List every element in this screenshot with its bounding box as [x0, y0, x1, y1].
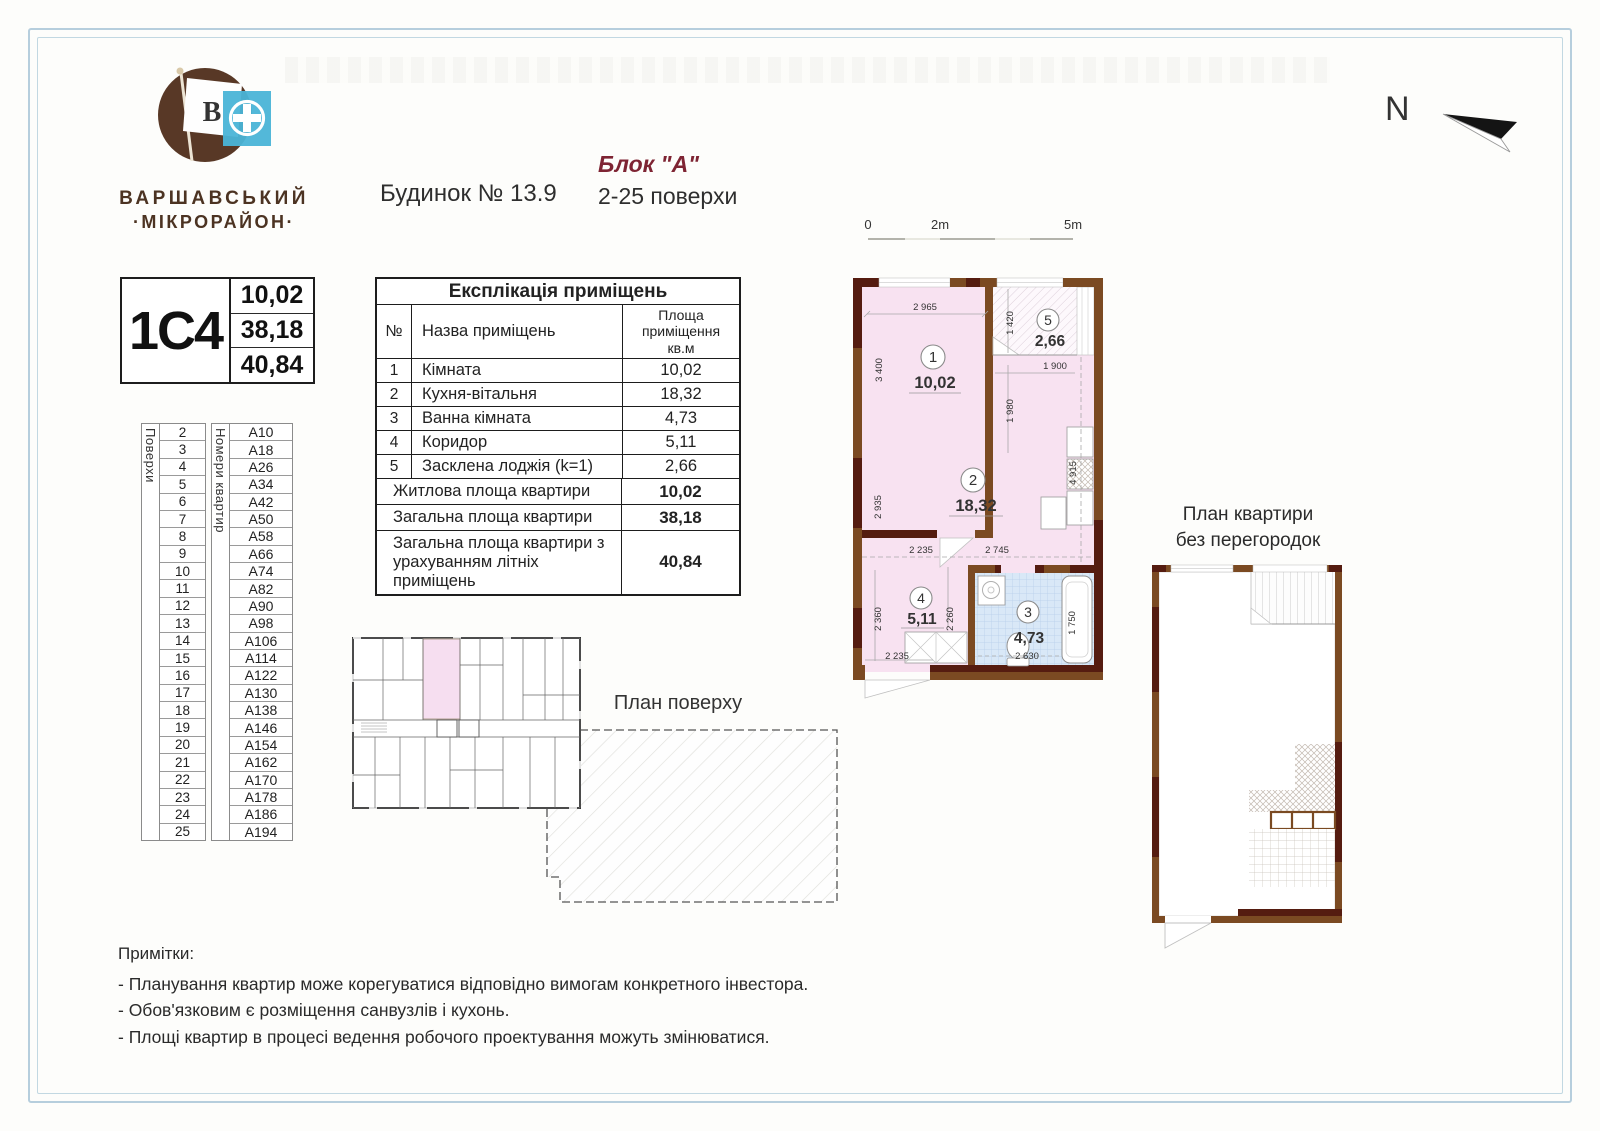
floor-number: 24	[160, 806, 205, 823]
apartment-number: A50	[230, 511, 292, 528]
explication-title: Експлікація приміщень	[377, 279, 739, 305]
floor-number: 11	[160, 580, 205, 597]
adjacent-block-outline	[547, 730, 837, 902]
residential-block	[353, 638, 580, 808]
brand-logo: В	[120, 58, 310, 188]
building-title: Будинок № 13.9	[380, 180, 557, 208]
loggia-area	[1251, 572, 1335, 624]
floor-number: 18	[160, 702, 205, 719]
dim-room1-left: 3 400	[874, 358, 885, 382]
apartment-number: A162	[230, 754, 292, 771]
floor-number: 5	[160, 476, 205, 493]
floor-number: 13	[160, 615, 205, 632]
dim-bath-right: 1 750	[1067, 611, 1078, 635]
floor-number: 21	[160, 754, 205, 771]
note-item: - Площі квартир в процесі ведення робочо…	[118, 1024, 1078, 1050]
apartment-number: A10	[230, 424, 292, 441]
apartment-plan: 0 2m 5m	[845, 215, 1110, 700]
entrance-door	[1165, 923, 1211, 948]
apartment-number: A146	[230, 719, 292, 736]
flagpole-knob	[177, 68, 184, 75]
explication-row: 2 Кухня-вітальня 18,32	[377, 383, 739, 407]
floor-number: 4	[160, 459, 205, 476]
floor-number: 15	[160, 650, 205, 667]
scale-tick-5m: 5m	[1064, 217, 1082, 232]
apartment-number: A138	[230, 702, 292, 719]
apartment-number: A154	[230, 737, 292, 754]
note-item: - Планування квартир може корегуватися в…	[118, 971, 1078, 997]
floor-number: 7	[160, 511, 205, 528]
scale-tick-0: 0	[864, 217, 871, 232]
flag-letter: В	[203, 97, 222, 128]
room2-number: 2	[969, 472, 977, 489]
dim-bath-top: 2 745	[985, 545, 1009, 556]
col-header-num: №	[377, 305, 412, 358]
dim-hall-height: 1 980	[1005, 399, 1016, 423]
floor-number: 20	[160, 737, 205, 754]
floor-number: 3	[160, 441, 205, 458]
apartment-numbers-table: Номери квартир A10A18A26A34A42A50A58A66A…	[211, 423, 293, 841]
apartment-number: A114	[230, 650, 292, 667]
floors-label: Поверхи	[142, 424, 160, 840]
apartment-number: A66	[230, 546, 292, 563]
unit-code: 1С4	[122, 279, 231, 382]
brand-name-line2: ·МІКРОРАЙОН·	[118, 212, 310, 233]
floor-number: 12	[160, 598, 205, 615]
col-header-area: Площа приміщення кв.м	[623, 305, 739, 358]
floor-plan-overview: План поверху	[345, 625, 845, 910]
explication-table: Експлікація приміщень № Назва приміщень …	[375, 277, 741, 596]
apartment-number: A74	[230, 563, 292, 580]
room3-number: 3	[1024, 604, 1032, 620]
room1-area: 10,02	[914, 374, 955, 392]
highlighted-unit	[423, 639, 460, 719]
floor-plan-label: План поверху	[614, 692, 742, 714]
elevator-shaft	[459, 720, 479, 737]
floors-table: Поверхи 23456789101112131415161718192021…	[141, 423, 206, 841]
room1-number: 1	[929, 349, 937, 366]
floor-number: 9	[160, 546, 205, 563]
dim-loggia-width: 1 900	[1043, 361, 1067, 372]
top-watermark-strip	[285, 57, 1330, 83]
north-label: N	[1385, 90, 1410, 128]
floor-number: 22	[160, 772, 205, 789]
apartment-number: A18	[230, 441, 292, 458]
unit-card-value: 40,84	[231, 348, 313, 382]
dim-top: 2 965	[913, 302, 937, 313]
room5-number: 5	[1044, 312, 1052, 328]
north-arrow: N	[1355, 72, 1555, 167]
floor-number: 6	[160, 494, 205, 511]
dim-room4-left: 2 360	[873, 607, 884, 631]
unit-card: 1С4 10,0238,1840,84	[120, 277, 315, 384]
explication-summary-row: Загальна площа квартири 38,18	[377, 505, 739, 531]
floor-number: 17	[160, 685, 205, 702]
explication-row: 4 Коридор 5,11	[377, 431, 739, 455]
scale-tick-2m: 2m	[931, 217, 949, 232]
apartment-number: A26	[230, 459, 292, 476]
unit-card-value: 38,18	[231, 314, 313, 349]
plan-sheet: В ВАРШАВСЬКИЙ ·МІКРОРАЙОН· Будинок № 13.…	[0, 0, 1600, 1131]
room3-area: 4,73	[1014, 630, 1045, 647]
apartment-number: A58	[230, 528, 292, 545]
apartment-number: A178	[230, 789, 292, 806]
unit-card-value: 10,02	[231, 279, 313, 314]
apartments-label: Номери квартир	[212, 424, 230, 840]
apartment-number: A42	[230, 494, 292, 511]
explication-summary-row: Загальна площа квартири з урахуванням лі…	[377, 531, 739, 594]
room2-area: 18,32	[955, 497, 996, 515]
block-title: Блок "А"	[598, 151, 699, 178]
dim-bath-bottom: 2 630	[1015, 651, 1039, 662]
floor-number: 25	[160, 824, 205, 840]
floor-number: 19	[160, 719, 205, 736]
notes: Примітки: - Планування квартир може коре…	[118, 944, 1078, 1050]
apartment-number: A106	[230, 633, 292, 650]
explication-row: 1 Кімната 10,02	[377, 359, 739, 383]
apartment-number: A98	[230, 615, 292, 632]
dim-room2-left: 2 935	[873, 495, 884, 519]
apartment-number: A34	[230, 476, 292, 493]
room4-number: 4	[917, 590, 925, 606]
elevator-shaft	[437, 720, 457, 737]
explication-header: № Назва приміщень Площа приміщення кв.м	[377, 305, 739, 359]
explication-row: 5 Засклена лоджія (k=1) 2,66	[377, 455, 739, 479]
floor-number: 2	[160, 424, 205, 441]
room5-area: 2,66	[1035, 333, 1066, 350]
apartment-number: A90	[230, 598, 292, 615]
notes-title: Примітки:	[118, 944, 1078, 964]
dim-bottom-left: 2 235	[885, 651, 909, 662]
dim-room4-height: 2 260	[945, 607, 956, 631]
scale-bar: 0 2m 5m	[864, 217, 1082, 239]
floors-range: 2-25 поверхи	[598, 183, 737, 210]
no-partitions-title: План квартири без перегородок	[1148, 502, 1348, 553]
apartment-number: A170	[230, 772, 292, 789]
floor-number: 16	[160, 667, 205, 684]
note-item: - Обов'язковим є розміщення санвузлів і …	[118, 997, 1078, 1023]
apartment-number: A130	[230, 685, 292, 702]
explication-row: 3 Ванна кімната 4,73	[377, 407, 739, 431]
col-header-name: Назва приміщень	[412, 305, 623, 358]
dim-right-height: 4 915	[1068, 461, 1079, 485]
no-partitions-plan	[1143, 552, 1355, 952]
floor-number: 23	[160, 789, 205, 806]
room4-area: 5,11	[907, 611, 937, 628]
brand-name-line1: ВАРШАВСЬКИЙ	[118, 188, 310, 210]
dim-loggia-height: 1 420	[1005, 311, 1016, 335]
floor-number: 10	[160, 563, 205, 580]
apartment-number: A82	[230, 580, 292, 597]
explication-summary-row: Житлова площа квартири 10,02	[377, 479, 739, 505]
apartment-number: A194	[230, 824, 292, 840]
floor-number: 14	[160, 633, 205, 650]
dim-room4-top: 2 235	[909, 545, 933, 556]
apartment-number: A186	[230, 806, 292, 823]
floor-number: 8	[160, 528, 205, 545]
apartment-number: A122	[230, 667, 292, 684]
